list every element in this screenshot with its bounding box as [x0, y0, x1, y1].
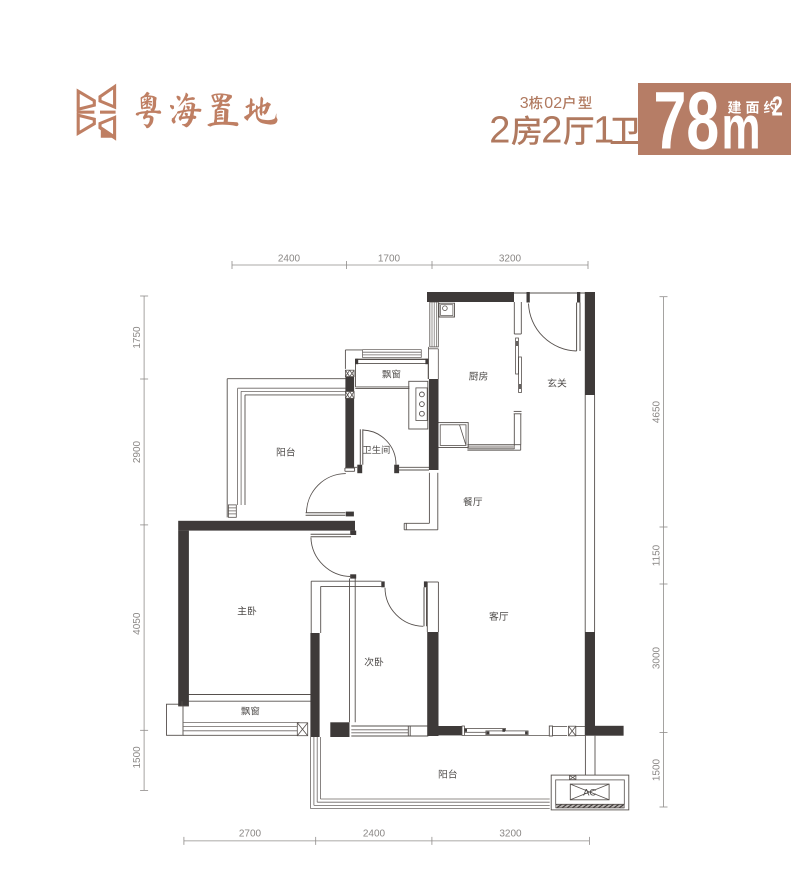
- svg-text:3200: 3200: [499, 828, 522, 839]
- svg-text:78: 78: [654, 75, 720, 167]
- svg-text:3200: 3200: [499, 254, 522, 265]
- svg-text:AC: AC: [583, 787, 596, 798]
- svg-text:2: 2: [772, 91, 783, 122]
- svg-text:1: 1: [593, 109, 614, 151]
- svg-text:2400: 2400: [363, 828, 386, 839]
- svg-text:1500: 1500: [132, 746, 143, 769]
- svg-text:2700: 2700: [239, 828, 262, 839]
- svg-text:1700: 1700: [378, 254, 401, 265]
- svg-text:1750: 1750: [132, 326, 143, 349]
- svg-text:2400: 2400: [278, 254, 301, 265]
- svg-text:3000: 3000: [652, 646, 663, 669]
- svg-text:2: 2: [541, 109, 562, 151]
- svg-text:2: 2: [489, 109, 510, 151]
- svg-text:1150: 1150: [652, 544, 663, 566]
- svg-text:1500: 1500: [652, 758, 663, 781]
- svg-text:4650: 4650: [652, 400, 663, 423]
- svg-text:2900: 2900: [132, 440, 143, 463]
- svg-text:4050: 4050: [132, 612, 143, 635]
- svg-text:3: 3: [520, 95, 529, 112]
